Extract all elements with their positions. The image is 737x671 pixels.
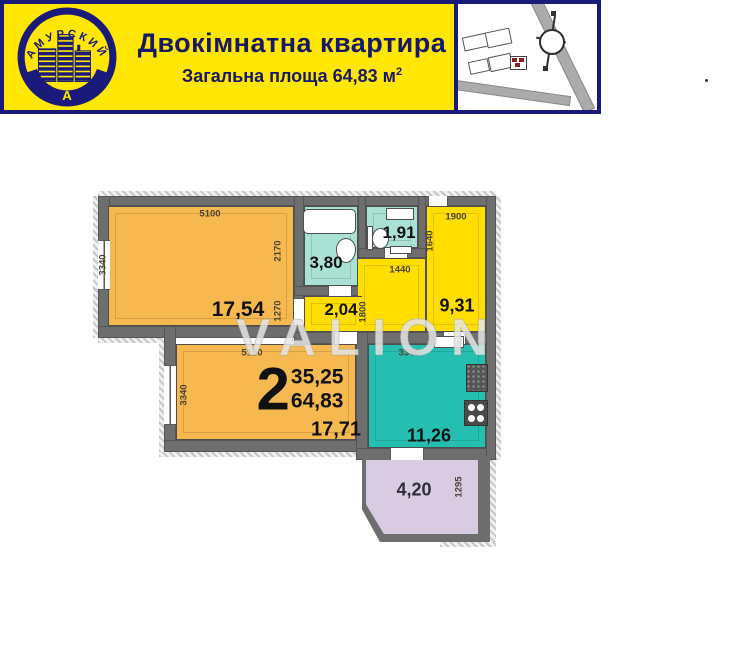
total-area-subtitle: Загальна площа 64,83 м2	[126, 66, 458, 87]
stove-icon	[464, 400, 488, 426]
wc-sink-icon	[390, 246, 412, 254]
dimension-label: 1640	[425, 230, 436, 251]
bathtub-icon	[303, 209, 356, 234]
room-area-label: 3,80	[309, 253, 342, 273]
map-building	[485, 28, 513, 49]
header-banner: АМУРСКИЙ А Двокімнатна квартира Загальна…	[0, 0, 601, 114]
window	[164, 365, 176, 425]
entrance-door-opening	[428, 196, 448, 206]
logo-building	[75, 51, 90, 82]
logo-building	[38, 49, 55, 82]
location-map	[454, 4, 597, 110]
compass-icon	[539, 29, 565, 55]
logo-building	[58, 35, 73, 82]
wall-hatch	[440, 542, 496, 547]
compass-end	[543, 66, 548, 71]
map-building	[468, 58, 490, 75]
dimension-label: 1295	[454, 476, 465, 497]
flyer: АМУРСКИЙ А Двокімнатна квартира Загальна…	[0, 0, 737, 671]
dimension-label: 2170	[273, 240, 284, 261]
room-area-label: 17,71	[311, 419, 361, 442]
subtitle-sup: 2	[396, 66, 402, 78]
washing-machine-icon	[386, 208, 414, 220]
dimension-label: 1900	[445, 212, 466, 223]
room-area-label: 11,26	[407, 426, 451, 447]
logo-antenna	[77, 45, 80, 51]
apartment-summary: 2 35,25 64,83	[257, 364, 344, 415]
balcony-door-opening	[390, 448, 424, 460]
dimension-label: 5100	[199, 209, 220, 220]
company-logo: АМУРСКИЙ А	[16, 6, 118, 108]
dimension-label: 1440	[389, 265, 410, 276]
stray-dot	[705, 79, 708, 82]
watermark: VALION	[236, 308, 501, 368]
room-area-label: 1,91	[382, 223, 415, 243]
living-area-value: 35,25	[291, 365, 344, 389]
wall-hatch	[490, 456, 496, 546]
wall	[164, 440, 368, 452]
room-count: 2	[257, 364, 290, 415]
dimension-label: 3340	[179, 384, 190, 405]
map-road	[454, 80, 571, 106]
wall-hatch	[159, 452, 368, 457]
total-area-value: 64,83	[291, 389, 344, 413]
subtitle-text: Загальна площа 64,83 м	[182, 66, 396, 86]
door-opening	[328, 286, 352, 296]
compass-end	[551, 11, 556, 16]
dimension-label: 3340	[98, 254, 109, 275]
map-building-highlighted	[510, 56, 527, 70]
logo-bottom-letter: А	[62, 88, 72, 103]
room-area-label: 4,20	[396, 480, 431, 501]
page-title: Двокімнатна квартира	[126, 28, 458, 59]
fridge-icon	[466, 364, 488, 392]
